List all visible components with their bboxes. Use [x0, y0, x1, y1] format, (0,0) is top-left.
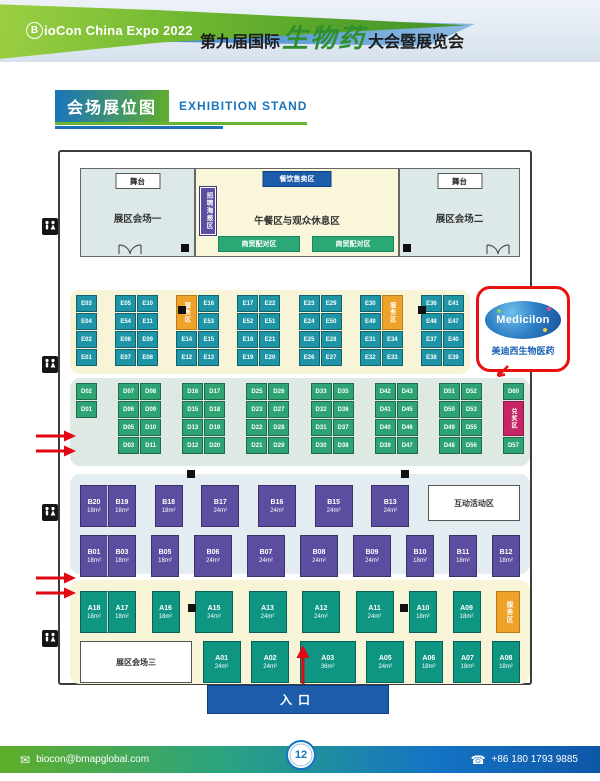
booth-D21: D21 — [246, 437, 267, 454]
booth-D31: D31 — [311, 419, 332, 436]
booth-D10: D10 — [140, 419, 161, 436]
booth-label: B06 — [207, 549, 220, 556]
booth-D22: D22 — [246, 419, 267, 436]
matching-zone-label: 商贸配对区 — [312, 236, 394, 252]
booth-D42: D42 — [375, 383, 396, 400]
booth-group: D33D32D31D30D35D36D37D38 — [311, 383, 354, 461]
booth-D11: D11 — [140, 437, 161, 454]
pillar — [403, 244, 411, 252]
booth-D38: D38 — [333, 437, 354, 454]
booth-E14: E14 — [176, 331, 197, 348]
logo-dot — [497, 309, 501, 313]
booth-B10: B1018m² — [406, 535, 434, 577]
booth-label: A06 — [422, 655, 435, 662]
booth-E32: E32 — [360, 349, 381, 366]
booth-A15: A1524m² — [195, 591, 233, 633]
booth-E13: E13 — [198, 349, 219, 366]
logo-b-icon: B — [26, 22, 43, 39]
booth-size: 24m² — [206, 558, 220, 564]
booth-B16: B1624m² — [258, 485, 296, 527]
booth-E02: E02 — [76, 331, 97, 348]
booth-size: 18m² — [416, 614, 430, 620]
hall-one: 舞台 展区会场一 — [80, 168, 195, 257]
booth-label: A18 — [88, 605, 101, 612]
booth-size: 24m² — [215, 664, 229, 670]
booth-size: 24m² — [259, 558, 273, 564]
booth-D43: D43 — [397, 383, 418, 400]
booth-A11: A1124m² — [356, 591, 394, 633]
booth-label: B03 — [116, 549, 129, 556]
booth-A06: A0618m² — [415, 641, 443, 683]
booth-B19: B1918m² — [108, 485, 136, 527]
booth-size: 18m² — [413, 558, 427, 564]
booth-size: 24m² — [383, 508, 397, 514]
booth-pair: B2018m²B1918m² — [80, 485, 136, 527]
booth-E26: E26 — [299, 349, 320, 366]
door-swing-icon — [117, 242, 143, 255]
booth-group: D42D41D40D39D43D45D46D47 — [375, 383, 418, 461]
restroom-icon — [42, 356, 58, 373]
booth-E15: E15 — [198, 331, 219, 348]
booth-size: 18m² — [159, 614, 173, 620]
booth-D50: D50 — [439, 401, 460, 418]
booth-size: 18m² — [87, 558, 101, 564]
booth-A01: A0124m² — [203, 641, 241, 683]
restroom-icon — [42, 504, 58, 521]
footer-email: ✉ biocon@bmapglobal.com — [20, 753, 149, 767]
booth-D30: D30 — [311, 437, 332, 454]
booth-D49: D49 — [439, 419, 460, 436]
booth-A17: A1718m² — [108, 591, 136, 633]
booth-B01: B0118m² — [80, 535, 108, 577]
booth-D02: D02 — [76, 383, 97, 400]
food-sales-label: 餐饮售卖区 — [263, 171, 332, 187]
footer-phone: ☎ +86 180 1793 9885 — [471, 753, 578, 767]
booth-label: B08 — [313, 549, 326, 556]
logo-text: ioCon China Expo 2022 — [44, 23, 193, 38]
booth-D26: D26 — [268, 383, 289, 400]
booth-D29: D29 — [268, 437, 289, 454]
booth-E39: E39 — [443, 349, 464, 366]
booth-D53: D53 — [461, 401, 482, 418]
booth-E28: E28 — [321, 331, 342, 348]
restroom-icon — [42, 630, 58, 647]
booth-E17: E17 — [237, 295, 258, 312]
booth-size: 18m² — [499, 558, 513, 564]
booth-label: A13 — [261, 605, 274, 612]
booth-E23: E23 — [299, 295, 320, 312]
booth-D03: D03 — [118, 437, 139, 454]
booth-label: B16 — [271, 499, 284, 506]
door-swing-icon — [485, 242, 511, 255]
medicilon-brand: Medicilon — [496, 314, 549, 326]
booth-size: 18m² — [456, 558, 470, 564]
booth-D01: D01 — [76, 401, 97, 418]
booth-size: 24m² — [314, 614, 328, 620]
booth-D36: D36 — [333, 401, 354, 418]
email-text[interactable]: biocon@bmapglobal.com — [36, 754, 149, 765]
booth-label: A17 — [116, 605, 129, 612]
booth-E53: E53 — [198, 313, 219, 330]
booth-size: 36m² — [321, 664, 335, 670]
booth-E27: E27 — [321, 349, 342, 366]
event-title: 第九届国际 生物药 大会暨展览会 — [200, 18, 464, 55]
booth-E30: E30 — [360, 295, 381, 312]
booth-E05: E05 — [115, 295, 136, 312]
booth-group: E30E49E31E32服务区E34E33 — [360, 295, 403, 369]
booth-D39: D39 — [375, 437, 396, 454]
booth-D37: D37 — [333, 419, 354, 436]
booth-B06: B0624m² — [194, 535, 232, 577]
booth-D12: D12 — [182, 437, 203, 454]
booth-label: A02 — [264, 655, 277, 662]
d-booth-band: D02D01D07D06D05D03D08D09D10D11D16D15D13D… — [70, 378, 530, 466]
entrance-label: 入口 — [207, 685, 389, 714]
booth-E47: E47 — [443, 313, 464, 330]
booth-label: B13 — [384, 499, 397, 506]
booth-row: B2018m²B1918m²B1818m²B1724m²B1624m²B1524… — [76, 485, 524, 527]
booth-size: 18m² — [115, 614, 129, 620]
entry-arrow-icon — [34, 587, 78, 599]
booth-E12: E12 — [176, 349, 197, 366]
booth-A12: A1224m² — [302, 591, 340, 633]
booth-D57: D57 — [503, 437, 524, 454]
booth-size: 24m² — [263, 664, 277, 670]
booth-D52: D52 — [461, 383, 482, 400]
pillar — [418, 306, 426, 314]
booth-size: 18m² — [158, 558, 172, 564]
booth-E09: E09 — [137, 331, 158, 348]
booth-label: B18 — [162, 499, 175, 506]
section-title: 会场展位图 EXHIBITION STAND — [55, 90, 307, 122]
booth-size: 24m² — [270, 508, 284, 514]
booth-E37: E37 — [421, 331, 442, 348]
booth-D09: D09 — [140, 401, 161, 418]
event-title-prefix: 第九届国际 — [200, 28, 280, 52]
booth-B17: B1724m² — [201, 485, 239, 527]
e-booth-band: E03E04E02E01E05E54E06E07E10E11E09E08服务区E… — [70, 290, 470, 374]
section-title-en: EXHIBITION STAND — [179, 99, 307, 113]
booth-D28: D28 — [268, 419, 289, 436]
booth-D17: D17 — [204, 383, 225, 400]
booth-label: A05 — [379, 655, 392, 662]
booth-size: 18m² — [87, 508, 101, 514]
booth-label: B19 — [116, 499, 129, 506]
logo-dot — [543, 328, 547, 332]
booth-B15: B1524m² — [315, 485, 353, 527]
booth-group: E23E24E25E26E29E50E28E27 — [299, 295, 342, 369]
booth-E16: E16 — [198, 295, 219, 312]
booth-E19: E19 — [237, 349, 258, 366]
envelope-icon: ✉ — [20, 753, 30, 767]
prize-booth: 兑奖区 — [503, 401, 524, 436]
b-booth-band: B2018m²B1918m²B1818m²B1724m²B1624m²B1524… — [70, 474, 530, 574]
booth-E48: E48 — [421, 313, 442, 330]
entry-arrow-icon — [34, 430, 78, 442]
booth-size: 18m² — [461, 664, 475, 670]
booth-B08: B0824m² — [300, 535, 338, 577]
booth-B20: B2018m² — [80, 485, 108, 527]
pillar — [401, 470, 409, 478]
hall-three-box: 展区会场三 — [80, 641, 192, 683]
pillar — [178, 306, 186, 314]
booth-D16: D16 — [182, 383, 203, 400]
booth-A18: A1818m² — [80, 591, 108, 633]
underline-blue — [55, 126, 223, 129]
booth-B13: B1324m² — [371, 485, 409, 527]
booth-row: B0118m²B0318m²B0518m²B0624m²B0724m²B0824… — [76, 535, 524, 577]
entry-arrow-icon — [34, 445, 78, 457]
page-number-badge: 12 — [286, 740, 316, 770]
booth-label: A10 — [417, 605, 430, 612]
booth-D60: D60 — [503, 383, 524, 400]
booth-group: D51D50D49D48D52D53D55D56 — [439, 383, 482, 461]
biocon-logo: BioCon China Expo 2022 — [26, 22, 193, 39]
medicilon-callout: Medicilon 美迪西生物医药 — [476, 286, 570, 372]
booth-A08: A0818m² — [492, 641, 520, 683]
booth-size: 18m² — [499, 664, 513, 670]
phone-text[interactable]: +86 180 1793 9885 — [492, 754, 578, 765]
booth-size: 24m² — [378, 664, 392, 670]
booth-D18: D18 — [204, 401, 225, 418]
medicilon-name: 美迪西生物医药 — [491, 344, 554, 357]
booth-group: D16D15D13D12D17D18D19D20 — [182, 383, 225, 461]
booth-D06: D06 — [118, 401, 139, 418]
booth-D55: D55 — [461, 419, 482, 436]
booth-A13: A1324m² — [249, 591, 287, 633]
booth-size: 18m² — [162, 508, 176, 514]
entry-arrow-icon — [34, 572, 78, 584]
stage-label: 舞台 — [115, 173, 160, 189]
booth-label: A11 — [368, 605, 380, 612]
medicilon-logo: Medicilon — [485, 301, 561, 339]
booth-B12: B1218m² — [492, 535, 520, 577]
booth-B18: B1818m² — [155, 485, 183, 527]
booth-size: 24m² — [213, 508, 227, 514]
booth-D19: D19 — [204, 419, 225, 436]
booth-E49: E49 — [360, 313, 381, 330]
booth-size: 24m² — [261, 614, 275, 620]
booth-A10: A1018m² — [409, 591, 437, 633]
booth-E38: E38 — [421, 349, 442, 366]
booth-label: B05 — [159, 549, 172, 556]
booth-E22: E22 — [259, 295, 280, 312]
booth-A05: A0524m² — [366, 641, 404, 683]
booth-D46: D46 — [397, 419, 418, 436]
interactive-zone-box: 互动活动区 — [428, 485, 520, 521]
floor-plan: 舞台 展区会场一 餐饮售卖区 招聘海报区 午餐区与观众休息区 商贸配对区 商贸配… — [58, 150, 532, 685]
booth-size: 24m² — [368, 614, 382, 620]
booth-label: B01 — [88, 549, 101, 556]
phone-icon: ☎ — [471, 753, 486, 767]
booth-group: E17E52E18E19E22E51E21E20 — [237, 295, 280, 369]
booth-label: A07 — [461, 655, 474, 662]
booth-D51: D51 — [439, 383, 460, 400]
booth-D13: D13 — [182, 419, 203, 436]
booth-E04: E04 — [76, 313, 97, 330]
booth-group: E36E48E37E38E41E47E40E39 — [421, 295, 464, 369]
booth-D40: D40 — [375, 419, 396, 436]
booth-E50: E50 — [321, 313, 342, 330]
booth-E41: E41 — [443, 295, 464, 312]
booth-A16: A1618m² — [152, 591, 180, 633]
booth-E40: E40 — [443, 331, 464, 348]
hall-two: 舞台 展区会场二 — [399, 168, 520, 257]
booth-D32: D32 — [311, 401, 332, 418]
booth-E01: E01 — [76, 349, 97, 366]
booth-label: A01 — [215, 655, 228, 662]
booth-E10: E10 — [137, 295, 158, 312]
booth-D56: D56 — [461, 437, 482, 454]
booth-E33: E33 — [382, 349, 403, 366]
underline-green — [55, 122, 307, 125]
booth-D08: D08 — [140, 383, 161, 400]
booth-label: B20 — [88, 499, 101, 506]
booth-E29: E29 — [321, 295, 342, 312]
booth-E06: E06 — [115, 331, 136, 348]
service-booth: 服务区 — [382, 295, 403, 330]
hall-two-label: 展区会场二 — [400, 211, 519, 225]
booth-D07: D07 — [118, 383, 139, 400]
booth-E34: E34 — [382, 331, 403, 348]
booth-B03: B0318m² — [108, 535, 136, 577]
lunch-area-label: 午餐区与观众休息区 — [196, 213, 398, 227]
section-title-zh: 会场展位图 — [55, 90, 169, 122]
pillar — [187, 470, 195, 478]
booth-label: B15 — [327, 499, 340, 506]
matching-zone-label: 商贸配对区 — [218, 236, 300, 252]
booth-group: D02D01 — [76, 383, 97, 461]
brochure-page: BioCon China Expo 2022 第九届国际 生物药 大会暨展览会 … — [0, 0, 600, 781]
booth-D27: D27 — [268, 401, 289, 418]
booth-label: B17 — [214, 499, 227, 506]
booth-E52: E52 — [237, 313, 258, 330]
booth-size: 18m² — [87, 614, 101, 620]
booth-E51: E51 — [259, 313, 280, 330]
booth-D15: D15 — [182, 401, 203, 418]
booth-D33: D33 — [311, 383, 332, 400]
booth-B07: B0724m² — [247, 535, 285, 577]
booth-D05: D05 — [118, 419, 139, 436]
booth-label: A03 — [321, 655, 334, 662]
booth-group: D25D23D22D21D26D27D28D29 — [246, 383, 289, 461]
booth-size: 24m² — [207, 614, 221, 620]
pillar — [188, 604, 196, 612]
poster-zone-label: 招聘海报区 — [200, 187, 216, 235]
booth-label: B07 — [260, 549, 273, 556]
booth-E18: E18 — [237, 331, 258, 348]
booth-size: 24m² — [365, 558, 379, 564]
booth-E21: E21 — [259, 331, 280, 348]
booth-E08: E08 — [137, 349, 158, 366]
booth-D25: D25 — [246, 383, 267, 400]
booth-pair: B0118m²B0318m² — [80, 535, 136, 577]
service-booth: 服务区 — [496, 591, 520, 633]
booth-A09: A0918m² — [453, 591, 481, 633]
booth-label: B10 — [414, 549, 427, 556]
booth-B05: B0518m² — [151, 535, 179, 577]
booth-size: 18m² — [460, 614, 474, 620]
booth-D23: D23 — [246, 401, 267, 418]
booth-D35: D35 — [333, 383, 354, 400]
booth-label: A15 — [208, 605, 221, 612]
booth-E54: E54 — [115, 313, 136, 330]
booth-D48: D48 — [439, 437, 460, 454]
callout-pointer-icon — [492, 364, 510, 380]
booth-size: 24m² — [312, 558, 326, 564]
hall-one-label: 展区会场一 — [81, 211, 194, 225]
booth-group: E05E54E06E07E10E11E09E08 — [115, 295, 158, 369]
booth-A07: A0718m² — [453, 641, 481, 683]
booth-E24: E24 — [299, 313, 320, 330]
booth-label: B11 — [457, 549, 469, 556]
booth-size: 24m² — [327, 508, 341, 514]
page-header: BioCon China Expo 2022 第九届国际 生物药 大会暨展览会 — [0, 0, 600, 62]
event-title-script: 生物药 — [282, 18, 366, 55]
pillar — [181, 244, 189, 252]
event-title-suffix: 大会暨展览会 — [368, 28, 464, 52]
booth-E31: E31 — [360, 331, 381, 348]
booth-A02: A0224m² — [251, 641, 289, 683]
booth-B11: B1118m² — [449, 535, 477, 577]
lunch-area: 餐饮售卖区 招聘海报区 午餐区与观众休息区 商贸配对区 商贸配对区 — [195, 168, 399, 257]
booth-D45: D45 — [397, 401, 418, 418]
booth-row: A1818m²A1718m²A1618m²A1524m²A1324m²A1224… — [76, 591, 524, 633]
booth-D20: D20 — [204, 437, 225, 454]
booth-group: D60兑奖区D57 — [503, 383, 524, 461]
booth-size: 18m² — [422, 664, 436, 670]
booth-label: A16 — [159, 605, 172, 612]
booth-E20: E20 — [259, 349, 280, 366]
logo-dot — [547, 307, 551, 311]
booth-E03: E03 — [76, 295, 97, 312]
booth-size: 18m² — [115, 508, 129, 514]
booth-E11: E11 — [137, 313, 158, 330]
booth-label: A08 — [500, 655, 513, 662]
booth-label: A09 — [460, 605, 473, 612]
booth-B09: B0924m² — [353, 535, 391, 577]
pillar — [400, 604, 408, 612]
booth-E25: E25 — [299, 331, 320, 348]
booth-label: B12 — [500, 549, 513, 556]
booth-D47: D47 — [397, 437, 418, 454]
booth-size: 18m² — [115, 558, 129, 564]
booth-E07: E07 — [115, 349, 136, 366]
booth-pair: A1818m²A1718m² — [80, 591, 136, 633]
booth-group: E03E04E02E01 — [76, 295, 97, 369]
entrance-arrow-icon — [296, 644, 310, 686]
restroom-icon — [42, 218, 58, 235]
booth-group: D07D06D05D03D08D09D10D11 — [118, 383, 161, 461]
booth-label: B09 — [366, 549, 379, 556]
booth-label: A12 — [315, 605, 328, 612]
stage-label: 舞台 — [437, 173, 482, 189]
booth-D41: D41 — [375, 401, 396, 418]
